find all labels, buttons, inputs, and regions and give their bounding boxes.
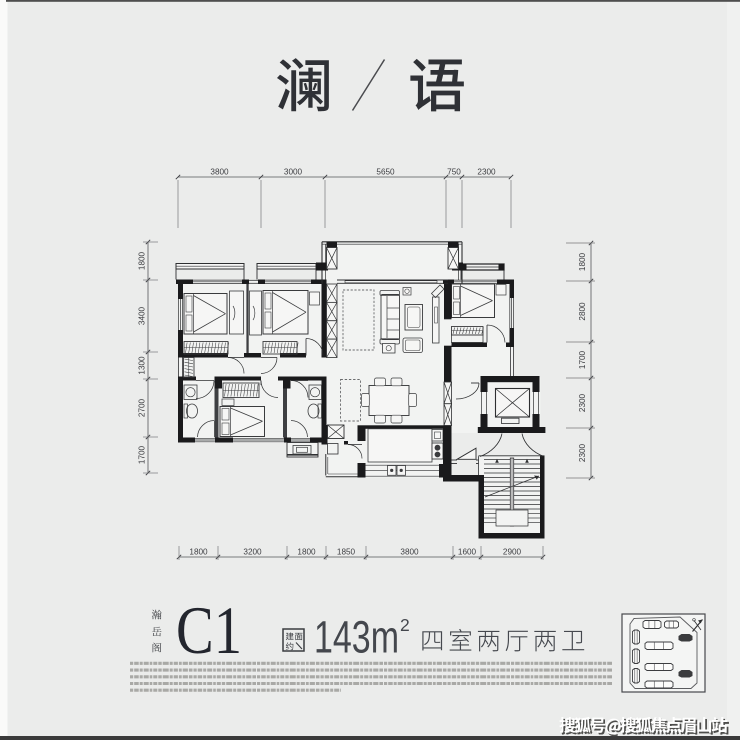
svg-text:3800: 3800 <box>210 168 229 177</box>
svg-text:2700: 2700 <box>138 398 147 417</box>
svg-text:2300: 2300 <box>477 168 496 177</box>
svg-text:143m: 143m <box>314 612 399 663</box>
svg-text:1800: 1800 <box>138 251 147 270</box>
svg-text:3200: 3200 <box>243 548 262 557</box>
svg-text:C1: C1 <box>176 592 242 668</box>
svg-text:3400: 3400 <box>138 306 147 325</box>
svg-text:2800: 2800 <box>578 302 587 321</box>
svg-text:2300: 2300 <box>578 393 587 412</box>
svg-text:5650: 5650 <box>376 168 395 177</box>
svg-text:1800: 1800 <box>578 252 587 271</box>
svg-text:750: 750 <box>447 168 461 177</box>
svg-text:1300: 1300 <box>138 356 147 375</box>
svg-text:3800: 3800 <box>400 548 419 557</box>
svg-text:1700: 1700 <box>138 445 147 464</box>
svg-text:3000: 3000 <box>284 168 303 177</box>
svg-text:1850: 1850 <box>337 548 356 557</box>
svg-text:2: 2 <box>400 615 410 635</box>
svg-text:1700: 1700 <box>578 350 587 369</box>
svg-text:1800: 1800 <box>189 548 208 557</box>
svg-text:2900: 2900 <box>503 548 522 557</box>
svg-text:2300: 2300 <box>578 443 587 462</box>
svg-text:1600: 1600 <box>458 548 477 557</box>
svg-text:1800: 1800 <box>297 548 316 557</box>
